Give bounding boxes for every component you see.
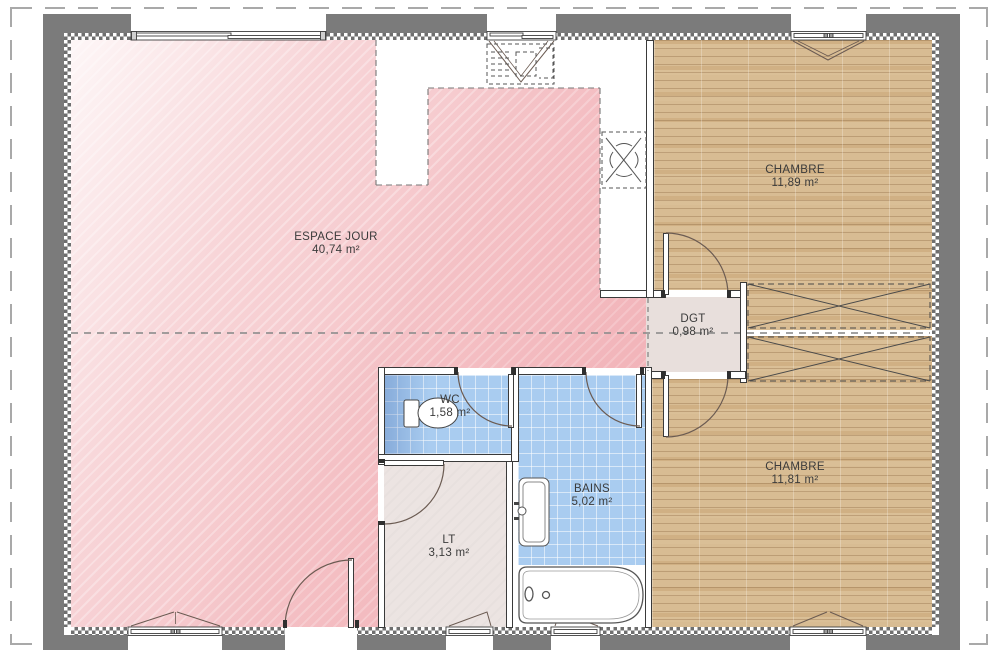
room-label-bains: BAINS 5,02 m² — [546, 483, 638, 509]
room-name: DGT — [647, 313, 739, 326]
bathtub-icon — [519, 567, 643, 623]
washbasin-icon — [514, 478, 549, 546]
room-area: 11,81 m² — [705, 474, 885, 487]
room-area: 3,13 m² — [403, 547, 495, 560]
window-bedroom1 — [791, 32, 866, 61]
kitchen-zone-dashed — [376, 40, 648, 371]
window-kitchen — [487, 32, 556, 83]
window-living-top — [131, 32, 326, 41]
window-living-bottom — [128, 612, 222, 636]
room-label-chambre1: CHAMBRE 11,89 m² — [705, 164, 885, 190]
room-name: WC — [404, 394, 496, 407]
bedroom1-door-arc — [666, 233, 728, 295]
room-label-espace-jour: ESPACE JOUR 40,74 m² — [246, 231, 426, 257]
closet-bedroom1 — [748, 284, 930, 328]
room-name: CHAMBRE — [705, 164, 885, 177]
lt-door-arc — [384, 464, 444, 524]
room-name: CHAMBRE — [705, 461, 885, 474]
floor-plan: ESPACE JOUR 40,74 m² CHAMBRE 11,89 m² DG… — [0, 0, 1000, 650]
detail-overlay — [0, 0, 1000, 650]
window-lt — [446, 612, 493, 636]
door-jambs — [283, 290, 731, 628]
room-area: 1,58 m² — [404, 407, 496, 420]
room-name: LT — [403, 534, 495, 547]
bains-door-arc — [586, 372, 640, 426]
room-label-lt: LT 3,13 m² — [403, 534, 495, 560]
room-area: 11,89 m² — [705, 177, 885, 190]
room-name: BAINS — [546, 483, 638, 496]
room-label-dgt: DGT 0,98 m² — [647, 313, 739, 339]
room-label-wc: WC 1,58 m² — [404, 394, 496, 420]
room-area: 5,02 m² — [546, 496, 638, 509]
room-name: ESPACE JOUR — [246, 231, 426, 244]
entry-door-arc — [285, 560, 352, 627]
room-area: 0,98 m² — [647, 326, 739, 339]
bedroom2-door-arc — [666, 375, 728, 437]
kitchen-units-dashed — [487, 44, 554, 84]
room-label-chambre2: CHAMBRE 11,81 m² — [705, 461, 885, 487]
closet-bedroom2 — [748, 337, 930, 381]
water-heater-symbol — [602, 132, 646, 188]
room-area: 40,74 m² — [246, 244, 426, 257]
window-bedroom2 — [790, 612, 866, 636]
